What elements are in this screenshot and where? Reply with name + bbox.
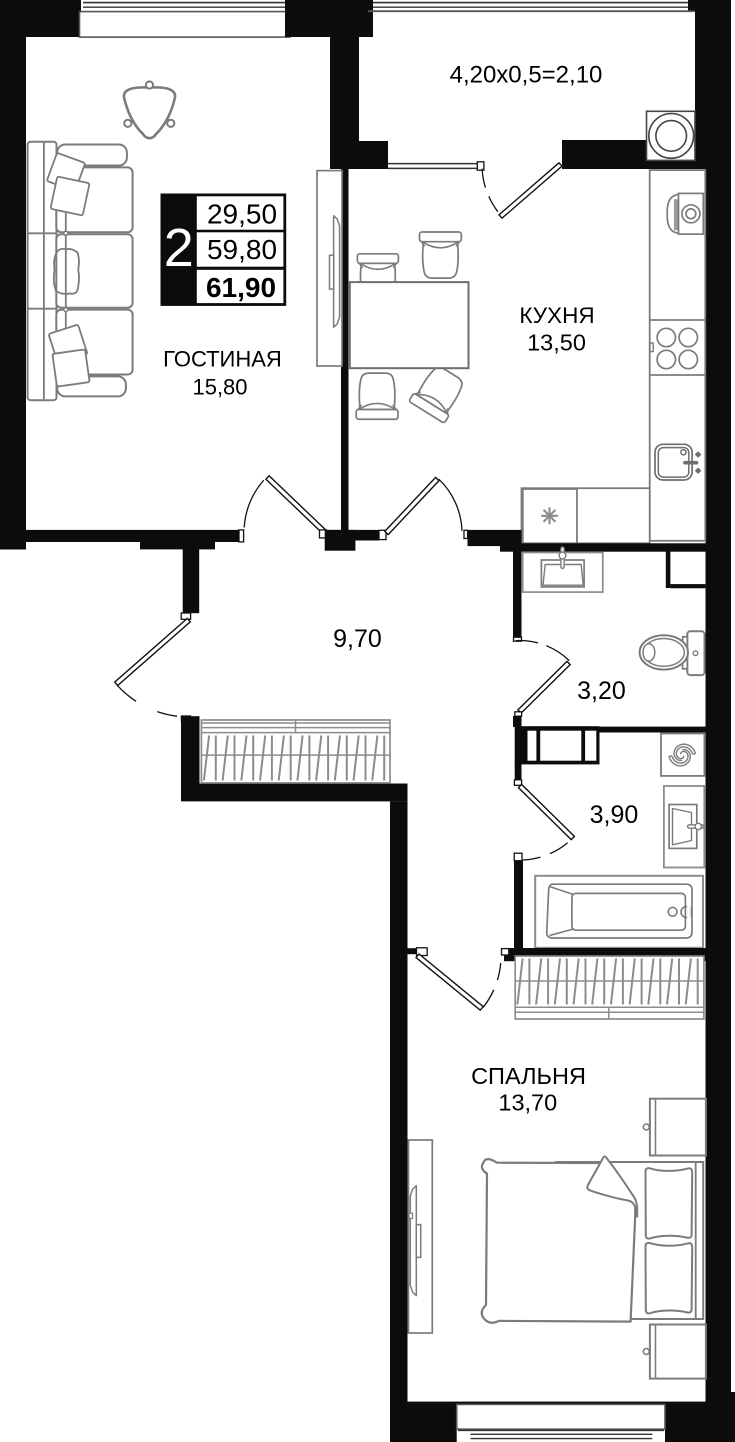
svg-text:15,80: 15,80 (192, 375, 247, 400)
svg-text:29,50: 29,50 (207, 199, 277, 230)
svg-text:9,70: 9,70 (333, 625, 382, 653)
svg-text:3,20: 3,20 (577, 677, 626, 705)
svg-text:2: 2 (164, 218, 194, 278)
svg-text:59,80: 59,80 (207, 234, 277, 265)
svg-text:3,90: 3,90 (590, 801, 639, 829)
svg-text:61,90: 61,90 (206, 272, 276, 303)
svg-text:СПАЛЬНЯ: СПАЛЬНЯ (471, 1063, 586, 1089)
svg-text:13,50: 13,50 (527, 330, 586, 356)
svg-text:13,70: 13,70 (498, 1090, 557, 1116)
svg-text:4,20x0,5=2,10: 4,20x0,5=2,10 (450, 62, 603, 89)
svg-text:ГОСТИНАЯ: ГОСТИНАЯ (163, 347, 282, 372)
svg-text:КУХНЯ: КУХНЯ (519, 303, 594, 328)
